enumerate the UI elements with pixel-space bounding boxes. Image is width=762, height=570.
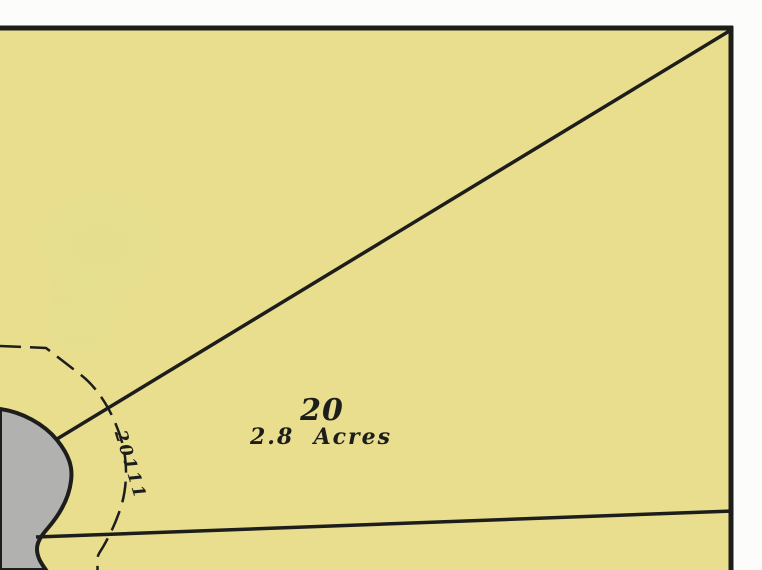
- plat-map: 20 2.8 Acres 20111: [0, 0, 762, 570]
- scan-blotch-upper: [38, 190, 162, 300]
- scan-blotch-lower: [38, 282, 122, 358]
- plat-map-drawing: [0, 0, 762, 570]
- lot-area-label: 2.8 Acres: [250, 424, 392, 450]
- lot-number-label: 20: [300, 393, 344, 428]
